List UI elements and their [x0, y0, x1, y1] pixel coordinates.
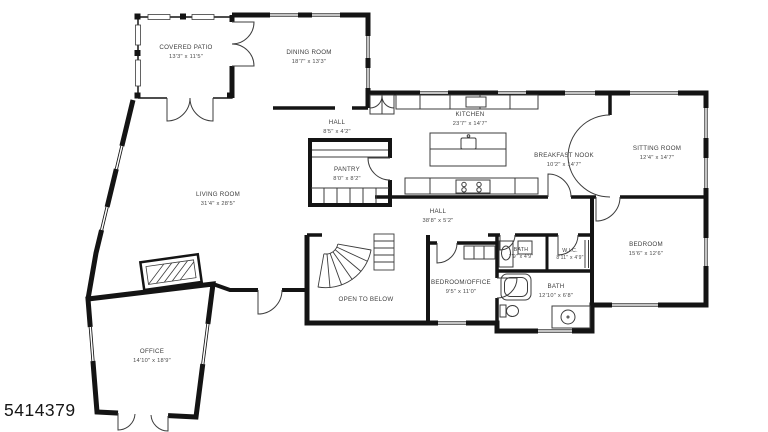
walls-layer: [88, 15, 706, 417]
room-dims: 38'8" x 5'2": [422, 216, 453, 225]
floorplan-page: COVERED PATIO 13'3" x 11'5" DINING ROOM …: [0, 0, 768, 432]
room-dims: 7'9" x 4'9": [509, 254, 534, 262]
room-label-hall-upper: HALL 8'5" x 4'2": [323, 118, 351, 136]
room-dims: 13'3" x 11'5": [159, 52, 212, 61]
room-name: HALL: [422, 207, 453, 217]
room-label-hall-main: HALL 38'8" x 5'2": [422, 207, 453, 225]
room-name: W.I.C.: [556, 247, 583, 255]
room-label-bedroom-office: BEDROOM/OFFICE 9'5" x 11'0": [431, 278, 491, 296]
room-label-dining-room: DINING ROOM 18'7" x 13'3": [286, 48, 331, 66]
room-label-bath-hall: BATH 7'9" x 4'9": [509, 246, 534, 262]
room-dims: 15'6" x 12'6": [629, 249, 663, 258]
mls-number: 5414379: [4, 400, 76, 421]
stairs: [318, 234, 394, 288]
room-name: SITTING ROOM: [633, 144, 681, 154]
room-name: BATH: [539, 282, 573, 292]
room-name: BEDROOM/OFFICE: [431, 278, 491, 288]
room-label-wic: W.I.C. 8'11" x 4'9": [556, 247, 583, 263]
room-label-living-room: LIVING ROOM 31'4" x 28'5": [196, 190, 240, 208]
room-dims: 18'7" x 13'3": [286, 57, 331, 66]
room-name: OPEN TO BELOW: [339, 295, 394, 305]
room-dims: 8'11" x 4'9": [556, 255, 583, 263]
room-name: OFFICE: [133, 347, 171, 357]
room-label-sitting-room: SITTING ROOM 12'4" x 14'7": [633, 144, 681, 162]
room-label-covered-patio: COVERED PATIO 13'3" x 11'5": [159, 43, 212, 61]
room-label-breakfast-nook: BREAKFAST NOOK 10'2" x 14'7": [534, 151, 594, 169]
room-label-kitchen: KITCHEN 23'7" x 14'7": [453, 110, 487, 128]
room-label-open-to-below: OPEN TO BELOW: [339, 295, 394, 305]
room-name: BREAKFAST NOOK: [534, 151, 594, 161]
room-label-pantry: PANTRY 8'0" x 8'2": [333, 165, 361, 183]
room-name: HALL: [323, 118, 351, 128]
room-dims: 8'0" x 8'2": [333, 174, 361, 183]
room-name: LIVING ROOM: [196, 190, 240, 200]
room-dims: 10'2" x 14'7": [534, 160, 594, 169]
room-dims: 14'10" x 18'9": [133, 356, 171, 365]
room-dims: 31'4" x 28'5": [196, 199, 240, 208]
room-dims: 12'4" x 14'7": [633, 153, 681, 162]
room-dims: 23'7" x 14'7": [453, 119, 487, 128]
room-name: BEDROOM: [629, 240, 663, 250]
room-name: DINING ROOM: [286, 48, 331, 58]
room-name: BATH: [509, 246, 534, 254]
floorplan-drawing: [0, 0, 768, 432]
room-dims: 12'10" x 6'8": [539, 291, 573, 300]
room-dims: 8'5" x 4'2": [323, 127, 351, 136]
room-label-bedroom: BEDROOM 15'6" x 12'6": [629, 240, 663, 258]
room-name: KITCHEN: [453, 110, 487, 120]
room-label-bath-main: BATH 12'10" x 6'8": [539, 282, 573, 300]
room-name: PANTRY: [333, 165, 361, 175]
room-label-office: OFFICE 14'10" x 18'9": [133, 347, 171, 365]
room-dims: 9'5" x 11'0": [431, 287, 491, 296]
room-name: COVERED PATIO: [159, 43, 212, 53]
